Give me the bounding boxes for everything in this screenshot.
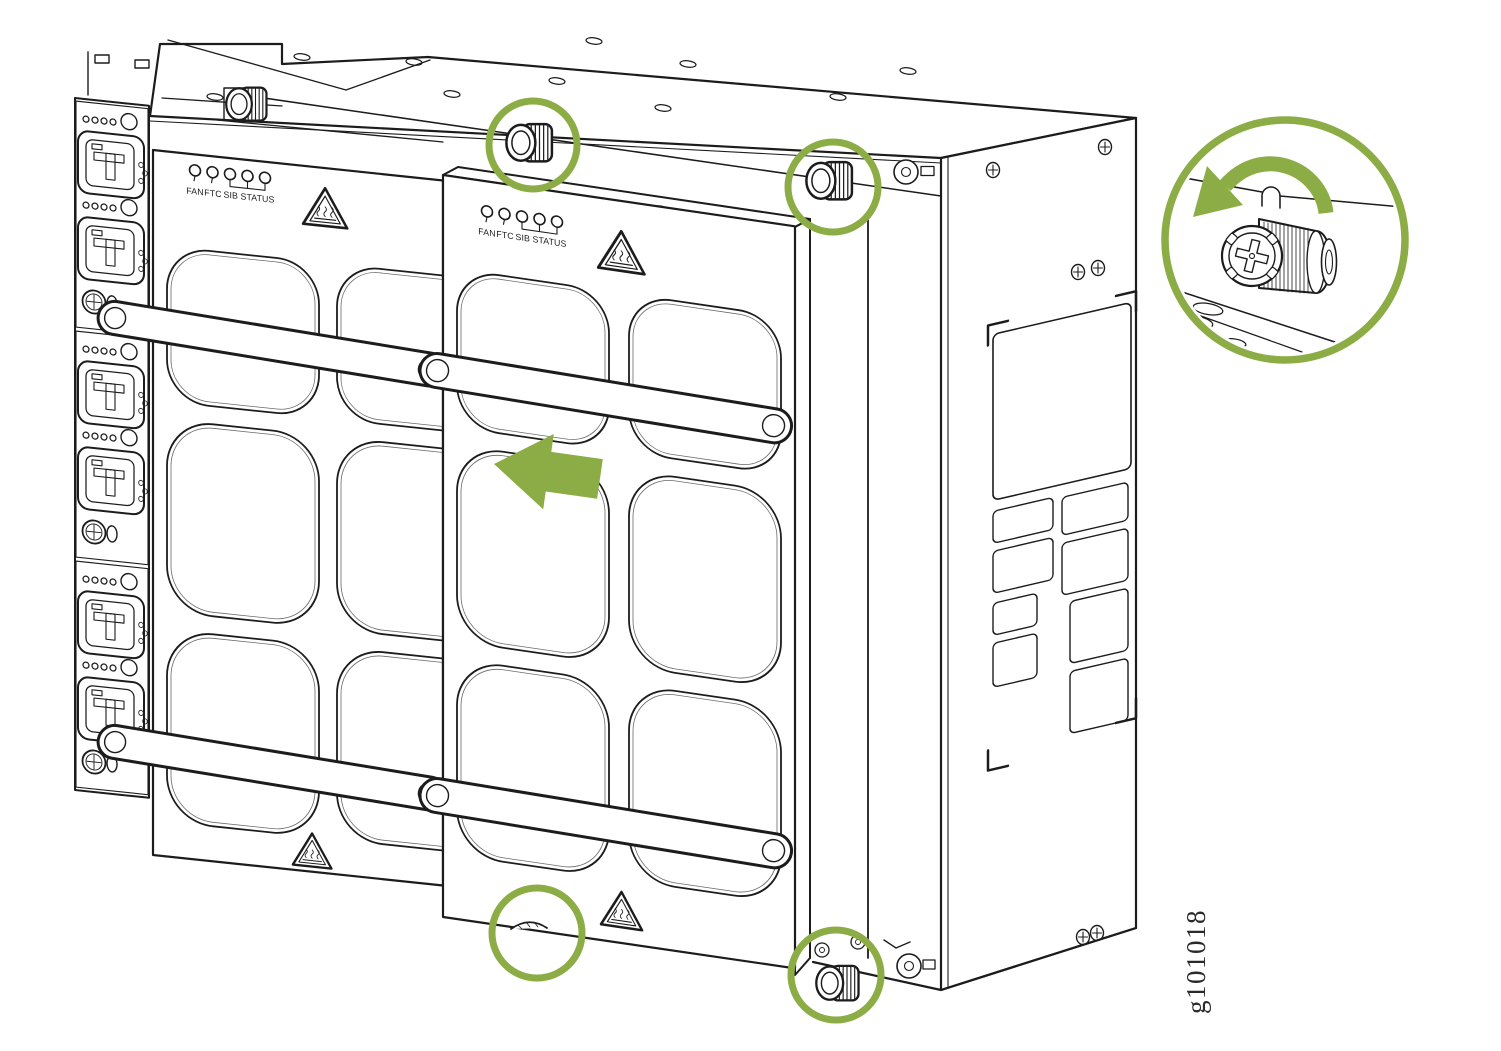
- captive-thumbscrew-icon: [226, 88, 266, 121]
- thumbscrew-detail-callout: [1163, 120, 1405, 360]
- loosen-counterclockwise-arrow-icon: [1193, 164, 1326, 217]
- hardware-removal-diagram: FAN FTC SIB STATUS FAN FTC SIB STATUS: [0, 0, 1501, 1051]
- led-label-ftc: FTC: [204, 187, 222, 199]
- captive-thumbscrew-icon: [1222, 219, 1337, 293]
- captive-thumbscrew-icon: [806, 162, 852, 199]
- captive-thumbscrew-icon: [506, 124, 552, 161]
- captive-thumbscrew-icon: [816, 966, 858, 1001]
- power-supply-column: [75, 98, 149, 798]
- led-label-fan: FAN: [186, 186, 203, 198]
- bottom-thumbscrew-area: [815, 935, 865, 1000]
- latch-ring-top: [894, 160, 934, 184]
- chassis-side-panel: [941, 118, 1136, 990]
- figure-id: g101018: [1181, 909, 1211, 1014]
- latch-ring-bottom: [884, 940, 935, 978]
- rack-flange-slots: [88, 52, 149, 95]
